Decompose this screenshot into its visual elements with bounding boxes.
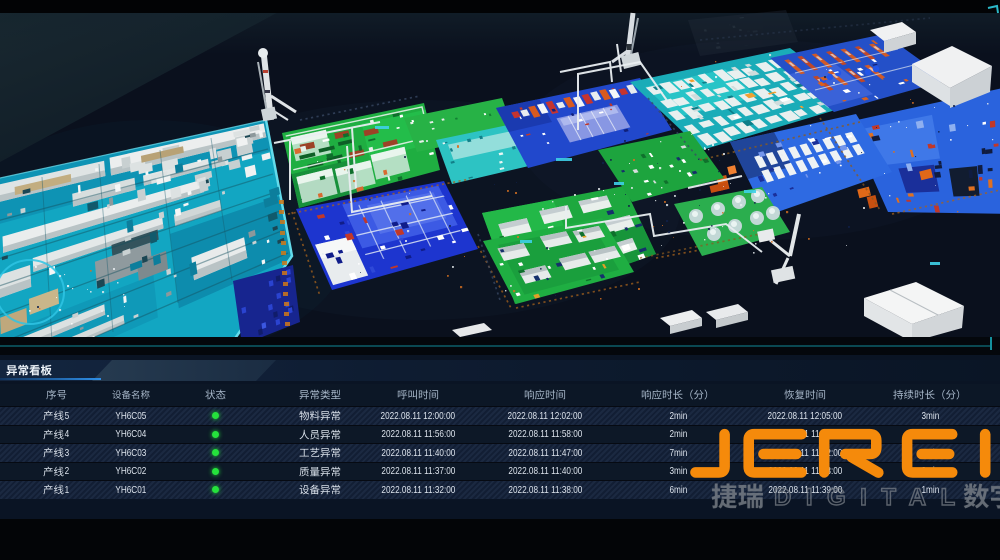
- svg-text:DIGITAL: DIGITAL: [774, 484, 970, 511]
